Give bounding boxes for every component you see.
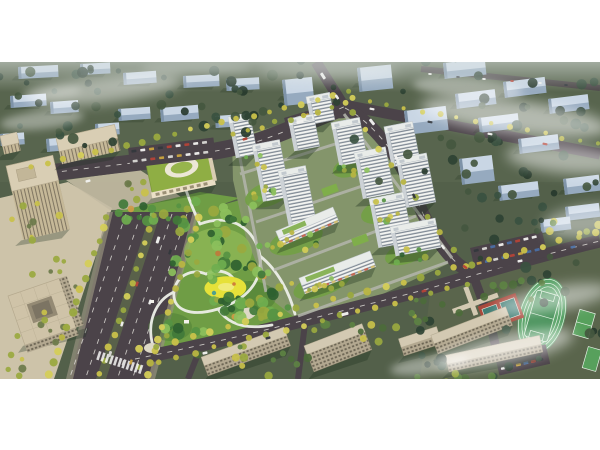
tree: [339, 281, 345, 287]
tree: [422, 168, 428, 174]
street-tree: [105, 344, 112, 351]
tree: [170, 260, 176, 266]
tree: [115, 209, 123, 217]
street-tree: [315, 109, 321, 115]
masterplan-rendering: [0, 62, 600, 379]
playground: [212, 291, 216, 295]
tree: [228, 305, 235, 312]
tree: [108, 137, 117, 146]
street-tree: [124, 293, 131, 300]
tree: [307, 231, 313, 237]
tree: [515, 217, 523, 225]
street-tree: [388, 162, 394, 168]
tree: [284, 237, 289, 242]
tree: [358, 329, 364, 335]
street-tree: [73, 298, 80, 305]
street-tree: [402, 106, 406, 110]
tree: [333, 99, 340, 106]
tree: [280, 350, 286, 356]
street-tree: [578, 139, 582, 143]
street-tree: [555, 237, 562, 244]
tree: [212, 240, 223, 251]
tree: [239, 363, 245, 369]
street-tree: [401, 280, 407, 286]
tree: [400, 252, 405, 257]
tree: [477, 193, 487, 203]
street-tree: [258, 315, 264, 321]
tree: [518, 277, 525, 284]
tree: [176, 203, 181, 208]
tree: [480, 293, 488, 301]
tree: [342, 168, 347, 173]
tree: [461, 224, 468, 231]
tree: [520, 262, 531, 273]
tree: [289, 230, 294, 235]
tree: [175, 227, 184, 236]
street-tree: [363, 288, 371, 296]
street-tree: [45, 370, 53, 378]
tree: [547, 254, 554, 261]
yellow-lawn-highlight: [218, 283, 234, 291]
tree: [474, 132, 485, 143]
tree: [184, 206, 191, 213]
tree: [313, 242, 319, 248]
tree: [386, 217, 391, 222]
street-tree: [78, 152, 84, 158]
tree: [551, 190, 558, 197]
tree: [456, 309, 463, 316]
street-tree: [301, 113, 306, 118]
street-tree: [225, 324, 231, 330]
street-tree: [486, 257, 492, 263]
tree: [311, 286, 318, 293]
tree: [285, 304, 291, 310]
street-tree: [177, 274, 183, 280]
street-tree: [28, 164, 33, 169]
tree: [439, 301, 446, 308]
tree: [294, 361, 301, 368]
tree: [462, 169, 472, 179]
tree: [534, 228, 540, 234]
street-tree: [242, 318, 249, 325]
tree: [258, 153, 263, 158]
street-tree: [159, 324, 165, 330]
tree: [126, 181, 131, 186]
tree: [519, 167, 529, 177]
tree: [168, 268, 176, 276]
tree: [489, 282, 496, 289]
street-tree: [401, 179, 407, 185]
tree: [141, 189, 149, 197]
street-tree: [301, 323, 307, 329]
tree: [257, 297, 268, 308]
tree: [241, 127, 251, 137]
street-tree: [465, 282, 470, 287]
street-tree: [92, 149, 98, 155]
tree: [245, 298, 254, 307]
tree: [392, 323, 400, 331]
tree: [527, 276, 537, 286]
tree: [288, 356, 295, 363]
street-tree: [343, 100, 349, 106]
tree: [194, 271, 201, 278]
tree: [20, 357, 25, 362]
street-tree: [204, 123, 210, 129]
tree: [489, 235, 499, 245]
street-tree: [521, 247, 528, 254]
street-tree: [168, 299, 174, 305]
tree: [277, 241, 284, 248]
tree: [52, 339, 59, 346]
tree: [148, 205, 156, 213]
tree: [157, 100, 167, 110]
street-tree: [428, 291, 433, 296]
tree: [351, 172, 357, 178]
tree: [377, 217, 382, 222]
tree: [173, 323, 184, 334]
playground: [232, 282, 236, 286]
street-tree: [408, 295, 413, 300]
tree: [509, 280, 518, 289]
tree: [237, 244, 247, 254]
street-tree: [425, 214, 431, 220]
tree: [494, 192, 501, 199]
street-tree: [330, 296, 336, 302]
street-tree: [350, 95, 356, 101]
tree: [422, 254, 429, 261]
tree: [271, 357, 276, 362]
street-tree: [540, 244, 546, 250]
tree: [16, 373, 23, 380]
tree: [262, 188, 267, 193]
street-tree: [188, 236, 195, 243]
tree: [403, 246, 409, 252]
tree: [128, 206, 135, 213]
page-canvas: [0, 0, 600, 450]
tree: [194, 259, 200, 265]
street-tree: [97, 371, 103, 377]
tree: [224, 292, 235, 303]
tree: [394, 259, 400, 265]
tree: [350, 134, 359, 143]
street-tree: [218, 119, 224, 125]
tree: [585, 328, 595, 338]
tree: [114, 111, 121, 118]
tree: [502, 325, 511, 334]
tree: [265, 242, 271, 248]
street-tree: [313, 303, 319, 309]
tree: [252, 194, 259, 201]
tree: [130, 187, 134, 191]
tree: [29, 218, 36, 225]
tree: [219, 203, 228, 212]
tree: [508, 190, 517, 199]
tree: [57, 269, 62, 274]
tree: [35, 201, 40, 206]
street-tree: [283, 327, 290, 334]
street-tree: [59, 334, 65, 340]
street-tree: [251, 113, 257, 119]
street-tree: [392, 301, 398, 307]
street-tree: [91, 250, 97, 256]
street-tree: [227, 341, 233, 347]
tree: [304, 354, 312, 362]
tree: [249, 202, 257, 210]
tree: [375, 177, 383, 185]
street-tree: [165, 309, 172, 316]
street-tree: [503, 253, 509, 259]
tree: [409, 310, 416, 317]
tree: [18, 365, 26, 373]
tree: [181, 107, 189, 115]
tree: [191, 197, 200, 206]
tree: [367, 321, 375, 329]
street-tree: [192, 350, 199, 357]
tree: [164, 333, 170, 339]
tree: [19, 202, 26, 209]
street-tree: [45, 161, 51, 167]
tree: [14, 333, 20, 339]
street-tree: [288, 117, 294, 123]
street-tree: [384, 102, 389, 107]
tree: [121, 215, 131, 225]
horizon-haze: [0, 62, 600, 92]
park-pavilion: [184, 320, 189, 324]
tree: [289, 281, 294, 286]
tree: [438, 135, 445, 142]
street-tree: [63, 324, 70, 331]
street-tree: [372, 305, 378, 311]
tree: [238, 345, 243, 350]
street-tree: [363, 127, 368, 132]
tree: [230, 216, 237, 223]
street-tree: [233, 116, 239, 122]
tree: [465, 188, 472, 195]
street-tree: [130, 280, 136, 286]
street-tree: [292, 304, 299, 311]
tree: [6, 367, 11, 372]
tree: [173, 216, 182, 225]
tree: [137, 215, 143, 221]
street-tree: [468, 262, 475, 269]
tree: [311, 327, 317, 333]
street-tree: [188, 127, 193, 132]
tree: [208, 206, 219, 217]
tree: [360, 335, 367, 342]
tree: [240, 353, 249, 362]
tree: [215, 251, 221, 257]
street-tree: [349, 109, 356, 116]
tree: [207, 274, 213, 280]
tree: [41, 317, 48, 324]
tree: [448, 155, 458, 165]
street-tree: [142, 240, 147, 245]
tree: [62, 259, 67, 264]
street-tree: [173, 355, 179, 361]
tree: [373, 199, 379, 205]
street-tree: [133, 266, 139, 272]
street-tree: [82, 275, 89, 282]
tree: [29, 236, 36, 243]
street-tree: [246, 335, 252, 341]
street-tree: [190, 333, 197, 340]
street-tree: [153, 134, 160, 141]
street-tree: [109, 148, 115, 154]
street-tree: [246, 128, 250, 132]
tree: [488, 137, 494, 143]
tree: [446, 139, 456, 149]
street-tree: [54, 348, 62, 356]
tree: [418, 258, 422, 262]
street-tree: [272, 119, 277, 124]
street-tree: [103, 214, 109, 220]
tree: [531, 219, 538, 226]
tree: [231, 260, 242, 271]
tree: [48, 269, 53, 274]
street-tree: [172, 285, 179, 292]
tree: [382, 198, 386, 202]
tree: [211, 264, 220, 273]
tree: [258, 271, 266, 279]
street-tree: [146, 226, 153, 233]
tree: [349, 322, 355, 328]
tree: [403, 150, 413, 160]
street-tree: [100, 224, 108, 232]
tree: [48, 329, 52, 333]
tree: [241, 111, 250, 120]
tree: [416, 247, 421, 252]
tree: [256, 243, 262, 249]
street-tree: [368, 99, 372, 103]
tree: [166, 216, 171, 221]
tree: [214, 220, 221, 227]
street-tree: [437, 229, 443, 235]
tree: [133, 196, 140, 203]
tree: [140, 179, 146, 185]
street-tree: [156, 359, 162, 365]
street-tree: [112, 332, 119, 339]
tree: [379, 324, 387, 332]
street-tree: [347, 292, 354, 299]
tree: [322, 283, 328, 289]
tree: [396, 211, 400, 215]
street-tree: [417, 274, 425, 282]
tree: [329, 276, 334, 281]
tree: [68, 133, 79, 144]
tree: [41, 310, 47, 316]
tree: [328, 285, 334, 291]
street-tree: [97, 238, 103, 244]
street-tree: [85, 260, 93, 268]
street-tree: [151, 213, 156, 218]
tree: [261, 164, 267, 170]
tree: [275, 283, 283, 291]
tree: [8, 352, 15, 359]
street-tree: [260, 125, 265, 130]
street-tree: [315, 97, 320, 102]
tree: [499, 281, 507, 289]
tree: [414, 298, 419, 303]
street-tree: [50, 358, 58, 366]
tree: [82, 143, 87, 148]
street-tree: [123, 142, 130, 149]
tree: [307, 288, 311, 292]
tree: [416, 326, 425, 335]
street-tree: [154, 336, 162, 344]
street-tree: [147, 359, 154, 366]
street-tree: [298, 101, 305, 108]
tree: [232, 354, 240, 362]
tree: [452, 370, 460, 378]
street-tree: [185, 249, 192, 256]
tree: [539, 280, 545, 286]
tree: [218, 298, 225, 305]
street-tree: [153, 344, 159, 350]
street-tree: [375, 146, 382, 153]
tree: [270, 245, 275, 250]
street-tree: [267, 110, 272, 115]
street-tree: [206, 328, 214, 336]
street-tree: [139, 139, 146, 146]
street-tree: [330, 105, 335, 110]
tree: [471, 160, 478, 167]
tree: [244, 155, 248, 159]
tree: [342, 164, 346, 168]
tree: [592, 179, 598, 185]
tree: [29, 271, 36, 278]
tree: [539, 218, 545, 224]
tree: [53, 256, 60, 263]
street-tree: [596, 141, 600, 145]
street-tree: [451, 247, 457, 253]
street-tree: [450, 264, 456, 270]
street-tree: [195, 214, 203, 222]
aerial-scene: [0, 62, 600, 379]
street-tree: [135, 345, 143, 353]
tree: [207, 230, 215, 238]
tree: [56, 128, 62, 134]
tree: [198, 103, 206, 111]
tree: [543, 270, 552, 279]
tree: [302, 247, 308, 253]
street-tree: [444, 286, 449, 291]
tree: [255, 162, 259, 166]
tree: [375, 338, 383, 346]
tree: [495, 214, 503, 222]
street-tree: [355, 308, 360, 313]
street-tree: [212, 344, 217, 349]
tree: [242, 216, 250, 224]
street-tree: [383, 283, 390, 290]
tree: [317, 282, 321, 286]
tree: [364, 167, 370, 173]
street-tree: [76, 286, 84, 294]
street-tree: [172, 132, 177, 137]
tree: [422, 316, 428, 322]
tree: [265, 269, 272, 276]
tree: [243, 266, 248, 271]
street-tree: [121, 307, 127, 313]
tree: [414, 318, 422, 326]
tree: [56, 212, 63, 219]
street-tree: [69, 308, 77, 316]
street-tree: [231, 132, 236, 137]
tree: [478, 256, 483, 261]
street-tree: [60, 156, 66, 162]
street-tree: [144, 371, 152, 379]
tree: [267, 288, 277, 298]
street-tree: [435, 270, 441, 276]
